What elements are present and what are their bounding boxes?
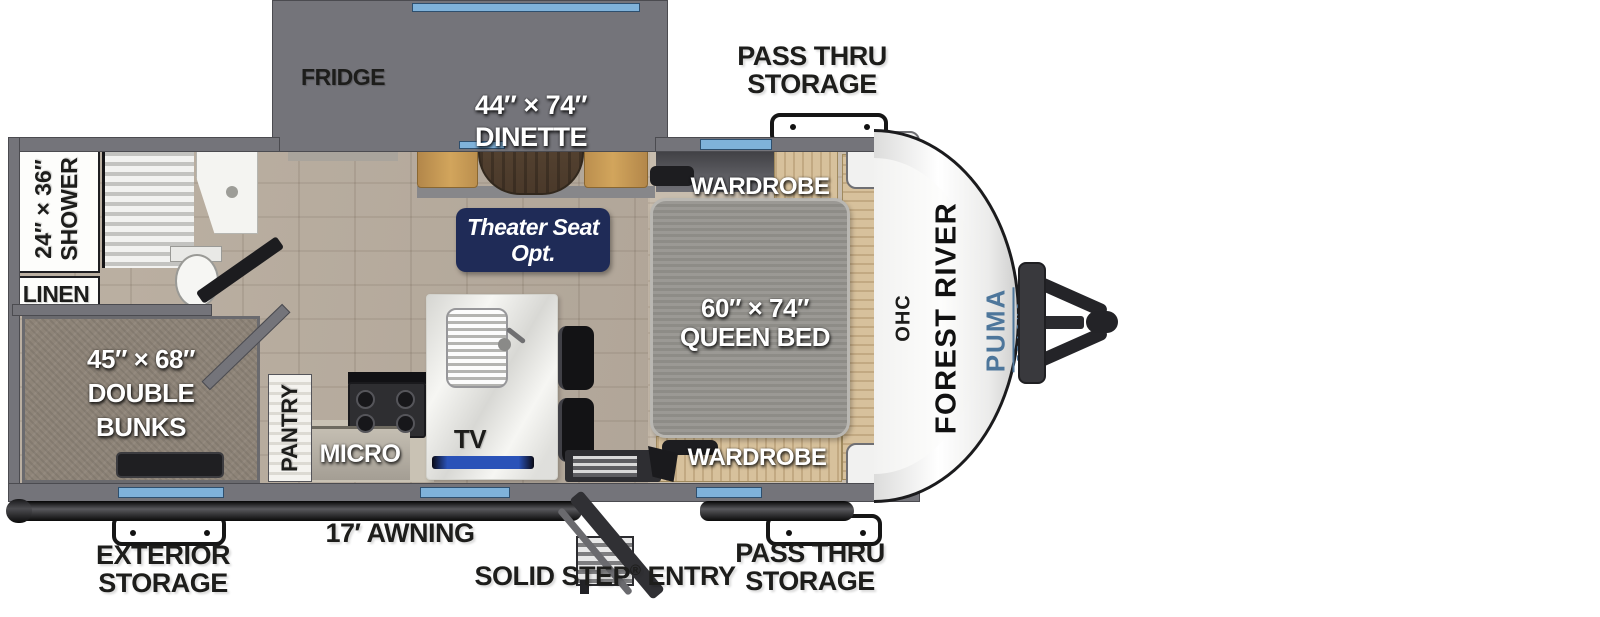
hitch-coupler bbox=[1086, 311, 1118, 333]
burner-1 bbox=[356, 390, 375, 409]
top-wall-left bbox=[8, 137, 280, 152]
exterior-storage-door-screw-1 bbox=[130, 530, 136, 536]
dinette-name-label: DINETTE bbox=[451, 122, 611, 153]
island-faucet bbox=[498, 338, 511, 351]
fridge-label: FRIDGE bbox=[288, 64, 398, 91]
ohc-label: OHC bbox=[893, 294, 916, 341]
hitch-jack-bracket bbox=[1018, 262, 1046, 384]
awning-label: 17′ AWNING bbox=[300, 519, 500, 547]
awning-tube-left bbox=[10, 501, 582, 521]
tv-unit bbox=[432, 456, 534, 469]
forest-river-logo: FOREST RIVER bbox=[931, 202, 964, 434]
dinette-size-label: 44″ × 74″ bbox=[451, 90, 611, 121]
tv-label: TV bbox=[434, 424, 506, 455]
bottom-window-3 bbox=[696, 487, 762, 498]
entry-landing-tread bbox=[573, 456, 637, 477]
exterior-storage-door-screw-2 bbox=[204, 530, 210, 536]
hitch-center-bar bbox=[1040, 316, 1084, 329]
rear-wall bbox=[8, 137, 20, 500]
slideout-window bbox=[412, 3, 640, 12]
sink-drain-dot bbox=[226, 186, 238, 198]
pass-thru-door-top-screw-1 bbox=[790, 124, 796, 130]
burner-2 bbox=[396, 390, 415, 409]
linen-label: LINEN bbox=[12, 281, 100, 308]
pantry-label: PANTRY bbox=[277, 384, 303, 472]
micro-label: MICRO bbox=[310, 440, 410, 469]
top-window-bedroom bbox=[700, 139, 772, 150]
queen-size-label: 60″ × 74″ bbox=[665, 293, 845, 324]
bunk-tray bbox=[116, 452, 224, 478]
awning-tube-endcap bbox=[6, 499, 32, 523]
floorplan-canvas: FRIDGE 44″ × 74″ DINETTE 24″ × 36″ SHOWE… bbox=[0, 0, 1600, 617]
bunks-line3-label: BUNKS bbox=[51, 412, 231, 443]
bunks-size-label: 45″ × 68″ bbox=[51, 344, 231, 375]
burner-4 bbox=[396, 414, 415, 433]
wardrobe-top-label: WARDROBE bbox=[675, 173, 845, 201]
bottom-window-2 bbox=[420, 487, 510, 498]
shower-label: 24″ × 36″ SHOWER bbox=[30, 157, 82, 261]
pass-thru-top-label: PASS THRU STORAGE bbox=[712, 42, 912, 98]
theater-line2: Opt. bbox=[456, 240, 610, 267]
bunks-line2-label: DOUBLE bbox=[51, 378, 231, 409]
wardrobe-bottom-label: WARDROBE bbox=[672, 444, 842, 472]
pass-thru-door-bottom-screw-2 bbox=[860, 530, 866, 536]
bottom-window-1 bbox=[118, 487, 224, 498]
burner-3 bbox=[356, 414, 375, 433]
theater-line1: Theater Seat bbox=[456, 214, 610, 241]
pass-thru-bottom-label: PASS THRU STORAGE bbox=[710, 539, 910, 595]
solid-step-label: SOLID STEP® ENTRY bbox=[470, 557, 740, 590]
pass-thru-door-top-screw-2 bbox=[864, 124, 870, 130]
puma-model: PUMA bbox=[981, 288, 1012, 373]
island-chair-1 bbox=[558, 326, 594, 390]
pass-thru-door-bottom-screw-1 bbox=[786, 530, 792, 536]
queen-name-label: QUEEN BED bbox=[665, 322, 845, 353]
awning-tube-right bbox=[700, 501, 854, 521]
exterior-storage-label: EXTERIOR STORAGE bbox=[63, 541, 263, 597]
